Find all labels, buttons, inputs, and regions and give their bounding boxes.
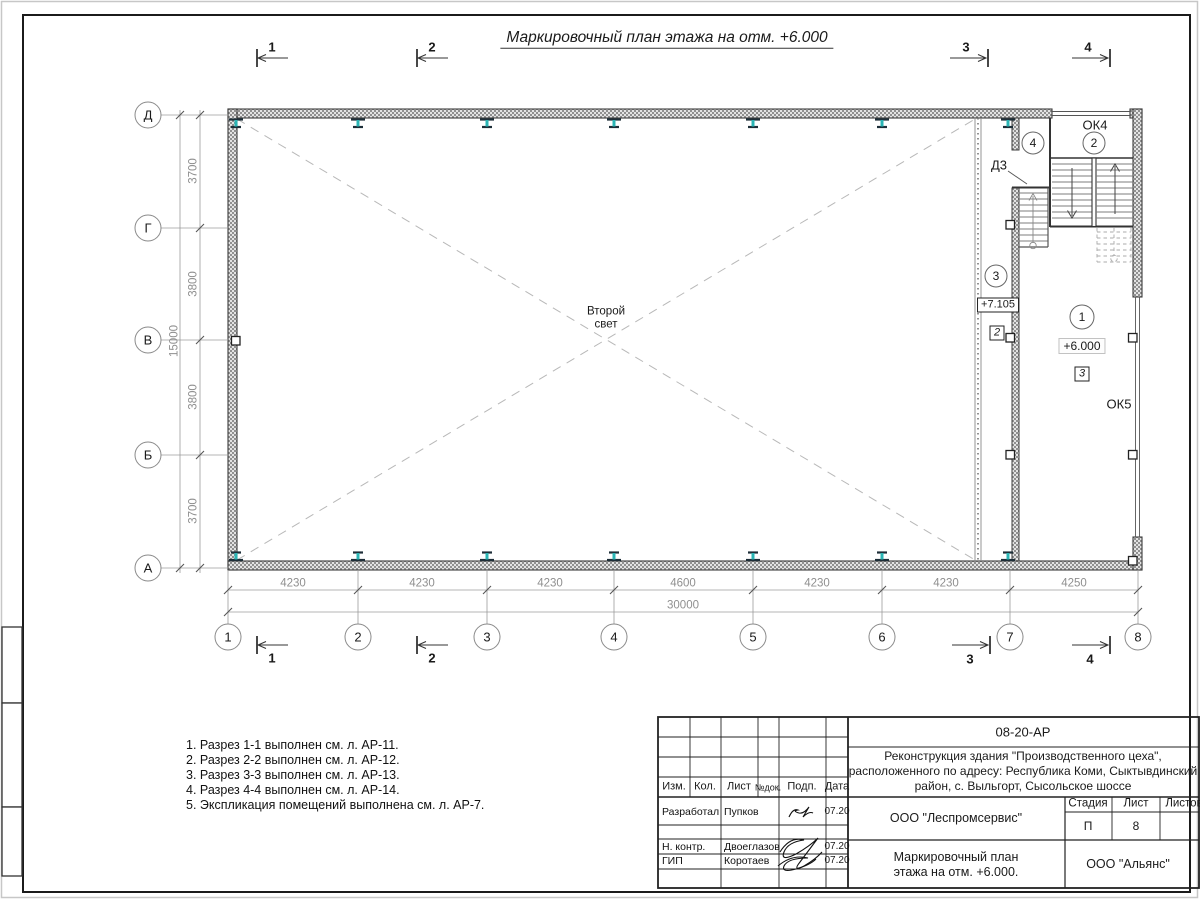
tb-col-data: Дата <box>825 782 849 793</box>
tb-org-design: ООО "Леспромсервис" <box>890 812 1022 825</box>
axis-left-v: В <box>144 334 153 347</box>
tb-col-podp: Подп. <box>787 782 816 793</box>
room-1-number: 1 <box>1079 311 1086 323</box>
window-ok4-label: ОК4 <box>1083 119 1108 132</box>
dim-3-4: 4230 <box>537 578 563 590</box>
dim-g-v: 3800 <box>188 271 200 297</box>
axis-left-a: А <box>144 562 153 575</box>
axis-3: 3 <box>483 631 490 644</box>
tb-col-kol: Кол. <box>694 782 716 793</box>
tb-col-izm: Изм. <box>662 782 686 793</box>
tb-name-developer: Пупков <box>724 806 759 818</box>
window-ok5-label: ОК5 <box>1107 398 1132 411</box>
section-1-bottom: 1 <box>268 652 275 665</box>
tb-project-line1: Реконструкция здания "Производственного … <box>884 750 1161 762</box>
elevation-upper: +7.105 <box>977 298 1019 313</box>
tb-col-ndok: №док. <box>755 784 781 793</box>
tb-sheets-label: Листов <box>1165 798 1200 810</box>
second-light-label-2: свет <box>594 319 617 331</box>
dashed-stair <box>1097 228 1131 262</box>
dim-b-a: 3700 <box>188 498 200 524</box>
tb-date-developer: 07.20 <box>824 807 849 817</box>
drawing-title: Маркировочный план этажа на отм. +6.000 <box>500 30 833 49</box>
finish-mark-3: 3 <box>1075 367 1090 382</box>
room-2-number: 2 <box>1091 137 1098 149</box>
tb-role-ncontrol: Н. контр. <box>662 841 705 853</box>
section-2-top: 2 <box>428 41 435 54</box>
axis-2: 2 <box>354 631 361 644</box>
finish-mark-2: 2 <box>990 326 1005 341</box>
note-3: 3. Разрез 3-3 выполнен см. л. АР-13. <box>186 768 400 782</box>
note-5: 5. Экспликация помещений выполнена см. л… <box>186 798 484 812</box>
dim-5-6: 4230 <box>804 578 830 590</box>
dim-4-5: 4600 <box>670 578 696 590</box>
note-4: 4. Разрез 4-4 выполнен см. л. АР-14. <box>186 783 400 797</box>
dim-6-7: 4230 <box>933 578 959 590</box>
axis-8: 8 <box>1134 631 1141 644</box>
axis-left-g: Г <box>144 222 151 235</box>
section-4-top: 4 <box>1084 41 1091 54</box>
section-1-top: 1 <box>268 41 275 54</box>
left-margin-stamps <box>2 627 22 876</box>
tb-sheet-label: Лист <box>1124 798 1149 810</box>
tb-role-developer: Разработал <box>662 806 719 818</box>
dimension-lines <box>161 110 1138 624</box>
axis-5: 5 <box>749 631 756 644</box>
section-3-top: 3 <box>962 41 969 54</box>
tb-role-gip: ГИП <box>662 855 683 867</box>
dim-1-2: 4230 <box>280 578 306 590</box>
dim-total-bottom: 30000 <box>667 600 699 612</box>
dim-d-g: 3700 <box>188 158 200 184</box>
d3-leader-line <box>1008 171 1027 184</box>
tb-date-ncontrol: 07.20 <box>824 842 849 852</box>
second-light-label-1: Второй <box>587 306 625 318</box>
section-3-bottom: 3 <box>966 653 973 666</box>
tb-name-ncontrol: Двоеглазов <box>724 841 780 853</box>
note-2: 2. Разрез 2-2 выполнен см. л. АР-12. <box>186 753 400 767</box>
elevation-main: +6.000 <box>1058 338 1105 354</box>
note-1: 1. Разрез 1-1 выполнен см. л. АР-11. <box>186 738 399 752</box>
tb-name-gip: Коротаев <box>724 855 769 867</box>
tb-doc-number: 08-20-АР <box>996 726 1051 739</box>
dim-2-3: 4230 <box>409 578 435 590</box>
room-4-number: 4 <box>1030 137 1037 149</box>
room-3-number: 3 <box>993 270 1000 282</box>
tb-stage-value: П <box>1084 820 1093 832</box>
tb-project-line2: расположенного по адресу: Республика Ком… <box>849 765 1198 777</box>
inner-dotted-wall <box>975 118 981 561</box>
axis-7: 7 <box>1006 631 1013 644</box>
door-d3-label: Д3 <box>991 159 1007 172</box>
drawing-sheet: Маркировочный план этажа на отм. +6.000 … <box>0 0 1200 900</box>
tb-project-line3: район, с. Выльгорт, Сысольское шоссе <box>915 780 1132 792</box>
axis-left-b: Б <box>144 449 153 462</box>
tb-drawing-line2: этажа на отм. +6.000. <box>894 866 1019 879</box>
section-4-bottom: 4 <box>1086 653 1093 666</box>
window-ok4-lines <box>1052 112 1130 116</box>
second-light-diagonals <box>237 119 975 560</box>
tb-sheet-value: 8 <box>1133 820 1140 832</box>
dim-v-b: 3800 <box>188 384 200 410</box>
dim-total-left: 15000 <box>169 325 181 357</box>
tb-drawing-line1: Маркировочный план <box>894 851 1019 864</box>
tb-org-client: ООО "Альянс" <box>1086 858 1170 871</box>
tb-col-list: Лист <box>727 782 751 793</box>
axis-6: 6 <box>878 631 885 644</box>
tb-date-gip: 07.20 <box>824 856 849 866</box>
dim-7-8: 4250 <box>1061 578 1087 590</box>
axis-1: 1 <box>224 631 231 644</box>
section-2-bottom: 2 <box>428 652 435 665</box>
tb-stage-label: Стадия <box>1068 798 1107 810</box>
axis-4: 4 <box>610 631 617 644</box>
axis-left-d: Д <box>144 109 153 122</box>
dimension-ticks <box>176 111 1142 616</box>
building-walls <box>228 109 1142 570</box>
